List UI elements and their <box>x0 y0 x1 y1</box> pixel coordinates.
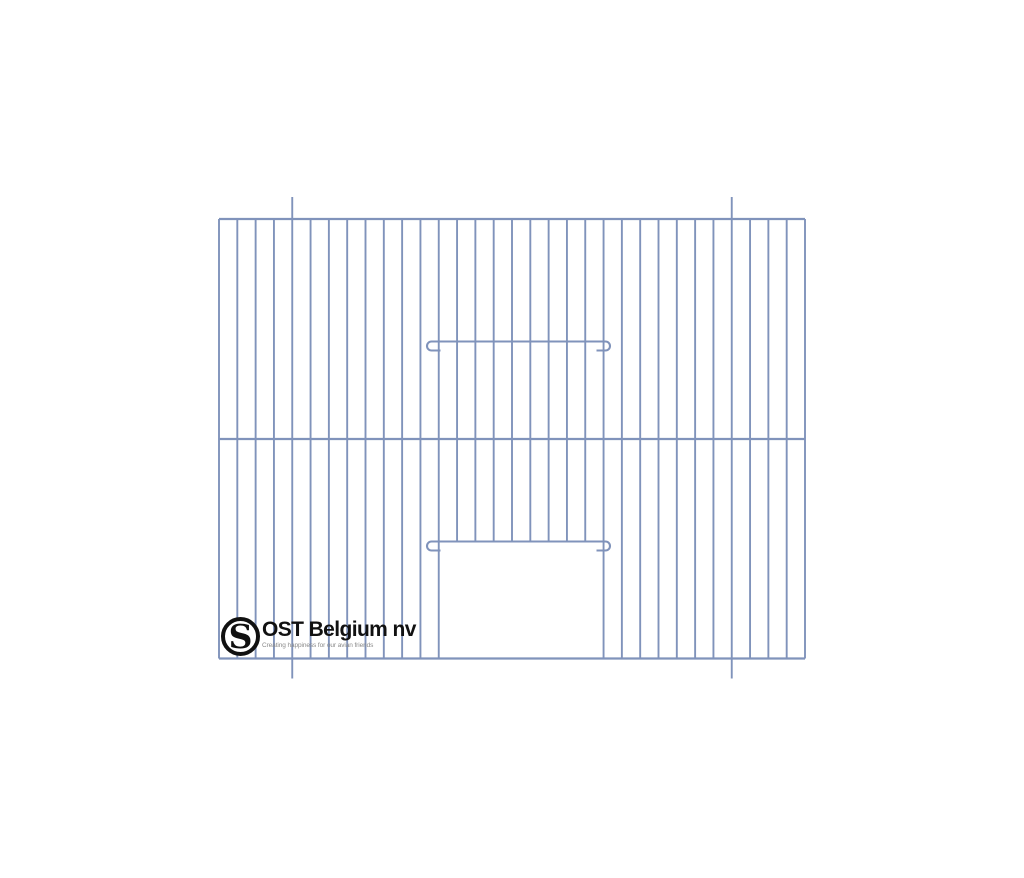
brand-logo: S OST Belgium nv Creating happiness for … <box>221 617 416 656</box>
door-hook-bar <box>427 542 610 551</box>
company-tagline: Creating happiness for our avian friends <box>262 642 416 649</box>
door-hook-bar <box>427 342 610 351</box>
product-image-canvas: S OST Belgium nv Creating happiness for … <box>0 0 1024 878</box>
cage-door-hook-bars <box>427 342 610 551</box>
company-name: OST Belgium nv <box>262 619 416 640</box>
brand-text-block: OST Belgium nv Creating happiness for ou… <box>262 617 416 649</box>
cage-front-drawing <box>0 0 1024 878</box>
brand-monogram-ring: S <box>221 617 260 656</box>
brand-monogram-letter: S <box>229 621 253 652</box>
cage-grid-wires <box>219 197 805 679</box>
